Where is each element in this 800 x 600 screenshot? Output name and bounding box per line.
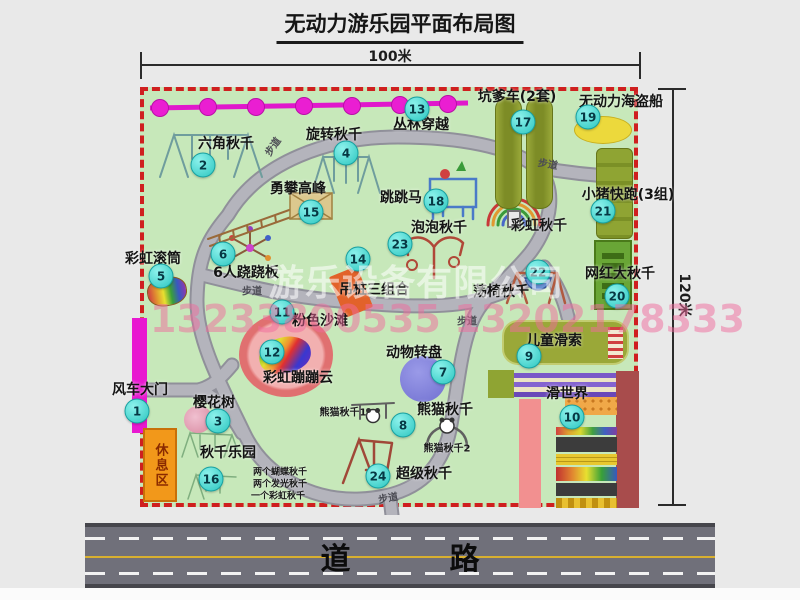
page-title: 无动力游乐园平面布局图 xyxy=(277,8,524,44)
poi-label-1: 风车大门 xyxy=(112,379,168,399)
poi-label-20: 网红大秋千 xyxy=(585,263,655,283)
poi-label-4: 旋转秋千 xyxy=(306,124,362,144)
rest-area: 休息区 xyxy=(143,428,177,502)
poi-label-8: 熊猫秋千 xyxy=(417,399,473,419)
dimension-tick-top xyxy=(658,88,686,90)
poi-label-17: 坑爹车(2套) xyxy=(478,86,557,106)
poi-label-2: 六角秋千 xyxy=(198,133,254,153)
poi-badge-7: 7 xyxy=(431,360,456,385)
poi-label-10: 滑世界 xyxy=(546,383,588,403)
poi-label-14: 吊桩三组合 xyxy=(339,279,409,299)
extra-label-1: 熊猫秋千1 xyxy=(320,404,367,419)
slide-world-olive-block xyxy=(488,370,514,398)
poi-label-12: 彩虹蹦蹦云 xyxy=(263,367,333,387)
slide-world-yellow-1 xyxy=(556,454,617,465)
poi-badge-15: 15 xyxy=(299,200,324,225)
poi-label-16: 秋千乐园 xyxy=(200,442,256,462)
slide-world-maroon-strip xyxy=(616,371,639,508)
poi-badge-8: 8 xyxy=(391,413,416,438)
poi-badge-1: 1 xyxy=(125,399,150,424)
poi-badge-21: 21 xyxy=(591,199,616,224)
poi-badge-16: 16 xyxy=(199,467,224,492)
poi-badge-3: 3 xyxy=(206,409,231,434)
poi-badge-24: 24 xyxy=(366,464,391,489)
rest-area-label: 休息区 xyxy=(151,443,170,488)
kids-zipline-ladder xyxy=(608,327,623,359)
poi-badge-17: 17 xyxy=(511,110,536,135)
walkway-label-3: 步道 xyxy=(457,313,477,328)
slide-world-dark-1 xyxy=(556,437,617,452)
poi-badge-12: 12 xyxy=(260,340,285,365)
dimension-line-vertical xyxy=(672,88,674,505)
height-dimension-label: 120米 xyxy=(675,273,695,316)
poi-badge-14: 14 xyxy=(346,247,371,272)
road: 道 路 xyxy=(85,523,715,588)
poi-badge-5: 5 xyxy=(149,264,174,289)
poi-badge-6: 6 xyxy=(211,242,236,267)
poi-badge-10: 10 xyxy=(560,405,585,430)
poi-badge-4: 4 xyxy=(334,141,359,166)
poi-label-15: 勇攀高峰 xyxy=(270,178,326,198)
poi-label-7: 动物转盘 xyxy=(386,342,442,362)
poi-badge-9: 9 xyxy=(517,344,542,369)
poi-badge-23: 23 xyxy=(388,232,413,257)
poi-badge-11: 11 xyxy=(270,300,295,325)
extra-label-5: 一个彩虹秋千 xyxy=(251,489,305,502)
width-dimension-label: 100米 xyxy=(368,46,411,66)
slide-world-wave-slide xyxy=(556,498,617,508)
dimension-tick-bottom xyxy=(658,504,686,506)
dimension-tick-right xyxy=(639,52,641,79)
extra-label-0: 彩虹秋千 xyxy=(511,215,567,235)
walkway-label-2: 步道 xyxy=(242,283,262,298)
poi-label-24: 超级秋千 xyxy=(396,463,452,483)
poi-label-18: 跳跳马 xyxy=(380,187,422,207)
poi-label-11: 粉色沙滩 xyxy=(292,310,348,330)
poi-badge-2: 2 xyxy=(191,153,216,178)
poi-label-22: 荡椅秋千 xyxy=(473,281,529,301)
poi-badge-18: 18 xyxy=(424,189,449,214)
slide-world-rainbow-strip-2 xyxy=(556,467,617,481)
walkway-label-1: 步道 xyxy=(537,154,559,172)
slide-world-pink-strip xyxy=(519,399,541,508)
poi-label-23: 泡泡秋千 xyxy=(411,217,467,237)
bottom-strip xyxy=(0,588,800,600)
extra-label-2: 熊猫秋千2 xyxy=(424,440,471,455)
park-layout-plan: 无动力游乐园平面布局图 100米 120米 xyxy=(0,0,800,600)
dimension-tick-left xyxy=(140,52,142,79)
road-label: 道 路 xyxy=(295,534,506,578)
poi-badge-22: 22 xyxy=(526,260,551,285)
slide-world-rainbow-strip-1 xyxy=(556,427,617,435)
poi-badge-13: 13 xyxy=(405,97,430,122)
poi-badge-20: 20 xyxy=(605,284,630,309)
poi-badge-19: 19 xyxy=(576,105,601,130)
slide-world-dark-2 xyxy=(556,483,617,496)
